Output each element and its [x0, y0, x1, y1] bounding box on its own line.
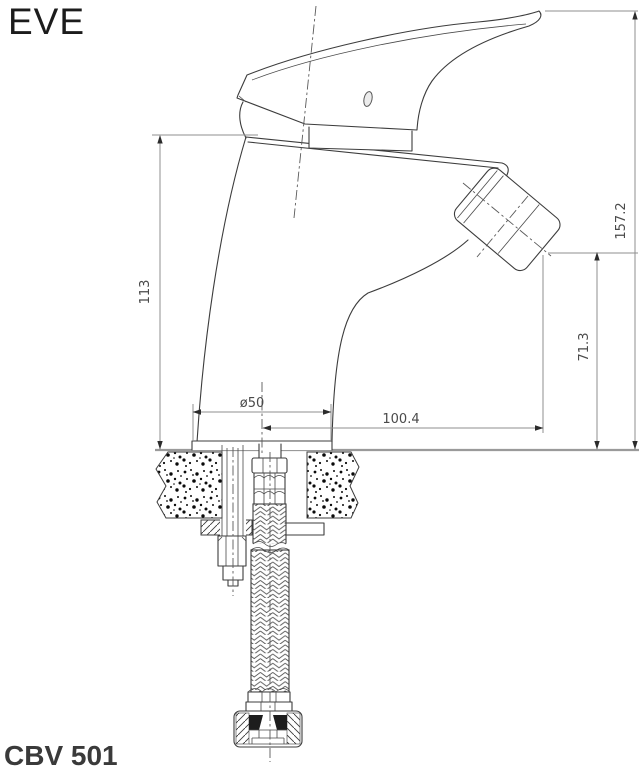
dim-outlet-height: 71.3 — [577, 252, 600, 450]
dim-label-base-diameter: ø50 — [240, 396, 265, 411]
countertop-section — [155, 450, 639, 518]
dim-label-overall-height: 157.2 — [614, 202, 629, 239]
drawing-sheet: EVE — [0, 0, 639, 774]
brand-title: EVE — [8, 0, 85, 44]
hose-top-nut — [252, 458, 287, 473]
dim-label-spout-reach: 100.4 — [382, 412, 419, 427]
stud-nut — [218, 536, 246, 586]
dim-body-height: 113 — [138, 135, 163, 450]
counter-left-block — [156, 452, 222, 518]
cartridge-collar — [309, 127, 412, 151]
counter-right-block — [307, 452, 359, 518]
hose-bottom-nut — [234, 711, 302, 747]
hose-braid-upper — [253, 504, 286, 544]
hose-crimp-collar — [254, 473, 285, 504]
dim-label-outlet-height: 71.3 — [577, 333, 592, 362]
body-shoulder-arc — [240, 102, 246, 138]
dim-overall-height: 157.2 — [614, 11, 638, 450]
technical-drawing: 113 157.2 71.3 ø50 — [0, 0, 639, 774]
model-code: CBV 501 — [4, 740, 118, 772]
dim-label-body-height: 113 — [138, 280, 153, 305]
handle-lever — [237, 11, 541, 130]
supply-hose — [234, 444, 302, 747]
mounting-plate — [285, 523, 324, 535]
